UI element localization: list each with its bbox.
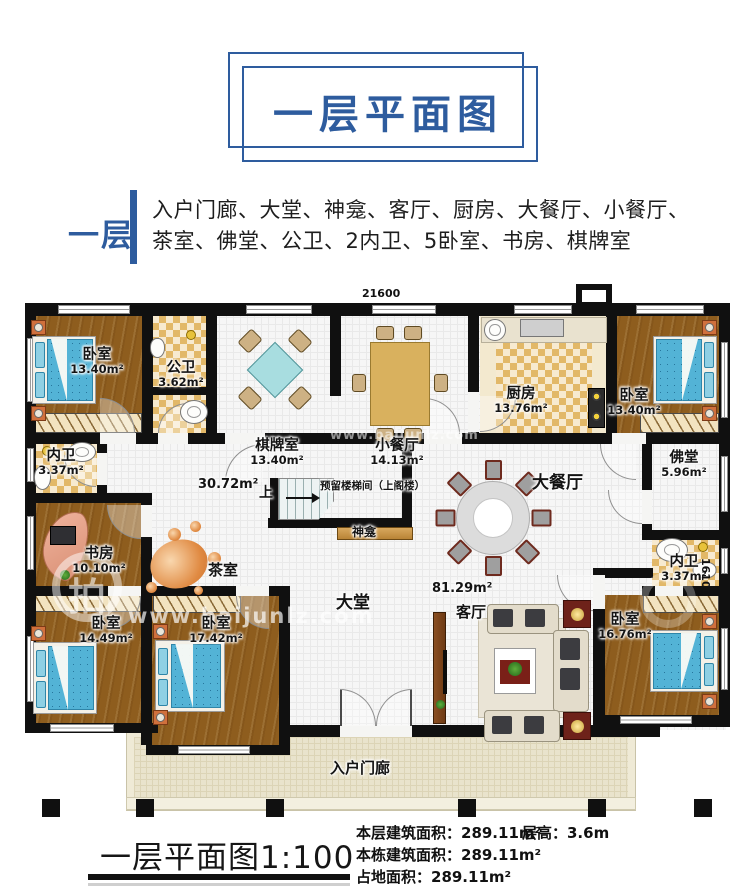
room-name: 卧室 [68, 616, 144, 632]
stairs-up-label: 上 [259, 486, 273, 502]
door-gap [593, 575, 605, 609]
datang-area-label: 81.29m² [432, 582, 492, 597]
tv [443, 650, 447, 694]
lamp [698, 542, 708, 552]
stairs-arrow-head [312, 493, 320, 503]
sofa-cushion [560, 638, 580, 660]
window [721, 456, 728, 512]
caption-underline [88, 874, 350, 880]
nightstand [702, 614, 717, 629]
sofa-cushion [524, 716, 544, 734]
chair [436, 510, 456, 527]
bed-pillow [36, 650, 46, 677]
porch-column [42, 799, 60, 817]
intro-line2: 茶室、佛堂、公卫、2内卫、5卧室、书房、棋牌室 [152, 226, 718, 257]
porch-column [588, 799, 606, 817]
window [721, 548, 728, 574]
bed-pillow [704, 342, 714, 368]
bed-pillow [704, 636, 714, 659]
room-label-bedroom-br: 卧室 16.76m² [587, 612, 663, 641]
room-name: 卧室 [594, 388, 674, 404]
chair [434, 374, 448, 392]
sofa-cushion [493, 609, 513, 627]
caption-underline-light [88, 883, 350, 886]
sofa-cushion [525, 609, 545, 627]
intro-floor-label: 一层 [68, 210, 134, 255]
room-area: 16.76m² [587, 628, 663, 641]
chashi-label: 茶室 [208, 562, 238, 579]
room-area: 13.40m² [237, 454, 317, 467]
chair [376, 326, 394, 340]
room-area: 13.76m² [481, 402, 561, 415]
room-name: 卧室 [587, 612, 663, 628]
page-title: 一层平面图 [242, 82, 534, 140]
wall [25, 493, 145, 503]
door-gap [141, 505, 152, 537]
dining-table-small [370, 342, 430, 426]
window [372, 305, 436, 314]
toilet [150, 338, 165, 358]
room-area: 13.40m² [60, 363, 134, 376]
sofa-cushion [492, 716, 512, 734]
room-label-bedroom-tr: 卧室 13.40m² [594, 388, 674, 417]
room-name: 棋牌室 [237, 438, 317, 454]
bed-pillow [36, 681, 46, 708]
plant [508, 662, 522, 676]
nightstand [702, 320, 717, 335]
room-label-gongwei: 公卫 3.62m² [146, 360, 216, 389]
porch-column [694, 799, 712, 817]
porch-column [136, 799, 154, 817]
room-name: 小餐厅 [357, 438, 437, 454]
computer-monitor [50, 526, 76, 545]
door-gap [158, 433, 188, 444]
room-name: 卧室 [178, 616, 254, 632]
porch-column [266, 799, 284, 817]
bed-pillow [158, 648, 168, 675]
room-area: 14.49m² [68, 632, 144, 645]
round-dining-table-center [473, 498, 513, 538]
room-label-bedroom-bl: 卧室 14.49m² [68, 616, 144, 645]
room-label-xiaocanting: 小餐厅 14.13m² [357, 438, 437, 467]
chair [352, 374, 366, 392]
room-name: 佛堂 [648, 450, 720, 466]
stairs-arrow-line [286, 497, 312, 499]
door-gap [612, 433, 646, 444]
datang-label: 大堂 [336, 594, 370, 613]
bed-pillow [35, 372, 45, 398]
intro-line1: 入户门廊、大堂、神龛、客厅、厨房、大餐厅、小餐厅、 [152, 195, 718, 226]
chimney [576, 284, 612, 308]
room-area: 3.62m² [146, 376, 216, 389]
entrance-gap [340, 725, 412, 737]
room-label-chufang: 厨房 13.76m² [481, 386, 561, 415]
window [27, 516, 34, 570]
nightstand [31, 626, 46, 641]
chair [485, 460, 502, 480]
door-gap [100, 433, 136, 444]
lamp [186, 330, 196, 340]
side-table [563, 712, 591, 740]
floorplan-page: 一层平面图 一层 入户门廊、大堂、神龛、客厅、厨房、大餐厅、小餐厅、 茶室、佛堂… [0, 0, 750, 887]
plant [436, 700, 445, 709]
door-gap [236, 586, 269, 596]
window [50, 724, 114, 732]
nightstand [31, 406, 46, 421]
kitchen-round-sink [484, 319, 506, 341]
door-gap [642, 490, 652, 524]
window [721, 628, 728, 690]
tea-dot [190, 521, 201, 532]
room-area: 5.96m² [648, 466, 720, 479]
room-name: 厨房 [481, 386, 561, 402]
room-label-bedroom-bm: 卧室 17.42m² [178, 616, 254, 645]
intro-divider [130, 190, 137, 264]
room-area: 17.42m² [178, 632, 254, 645]
stat-floor-height: 层高：3.6m [522, 822, 609, 843]
nightstand [702, 694, 717, 709]
bed-pillow [704, 372, 714, 398]
window [514, 305, 572, 314]
room-name: 内卫 [28, 448, 94, 464]
room-label-qipaishi: 棋牌室 13.40m² [237, 438, 317, 467]
chair [532, 510, 552, 527]
dimension-right: 16100 [699, 558, 712, 596]
kitchen-sink [520, 319, 564, 337]
porch-step [126, 797, 636, 810]
room-label-bedroom-tl: 卧室 13.40m² [60, 347, 134, 376]
bed-pillow [704, 663, 714, 686]
window [178, 746, 250, 754]
porch-column [458, 799, 476, 817]
room-area: 10.10m² [62, 562, 136, 575]
nightstand [153, 710, 168, 725]
stat-building-area: 本栋建筑面积：289.11m² [356, 844, 541, 865]
window [246, 305, 312, 314]
room-area: 14.13m² [357, 454, 437, 467]
room-name: 卧室 [60, 347, 134, 363]
hall-area-label: 30.72m² [198, 478, 258, 493]
wall [330, 316, 341, 396]
entrance-door-leaf [340, 690, 342, 726]
stat-land-area: 占地面积：289.11m² [356, 866, 511, 887]
stat-floor-area: 本层建筑面积：289.11m² [356, 822, 541, 843]
entrance-door-leaf [410, 690, 412, 726]
chair [404, 326, 422, 340]
room-name: 公卫 [146, 360, 216, 376]
keting-label: 客厅 [456, 604, 486, 621]
dimension-top: 21600 [362, 287, 400, 300]
tea-dot [146, 582, 157, 593]
window [721, 342, 728, 418]
room-name: 书房 [62, 546, 136, 562]
window [620, 716, 692, 724]
tea-dot [168, 528, 181, 541]
window [636, 305, 704, 314]
nightstand [702, 406, 717, 421]
room-label-neiwei-l: 内卫 3.37m² [28, 448, 94, 477]
window [58, 305, 130, 314]
tea-dot [194, 586, 203, 595]
shenkan-label: 神龛 [352, 526, 376, 539]
room-area: 13.40m² [594, 404, 674, 417]
bed-pillow [158, 679, 168, 706]
chair [485, 556, 502, 576]
nightstand [31, 320, 46, 335]
wall [642, 530, 730, 540]
room-label-shufang: 书房 10.10m² [62, 546, 136, 575]
door-gap [468, 392, 479, 432]
bed-pillow [35, 342, 45, 368]
door-gap [97, 453, 107, 485]
porch-label: 入户门廊 [330, 760, 390, 777]
dacanting-label: 大餐厅 [532, 474, 583, 493]
sofa-cushion [560, 668, 580, 690]
room-label-fotang: 佛堂 5.96m² [648, 450, 720, 479]
stairs-note: 预留楼梯间（上阁楼） [320, 481, 425, 493]
sink [180, 400, 208, 424]
room-area: 3.37m² [28, 464, 94, 477]
footer-caption: 一层平面图1:100 [100, 832, 354, 877]
